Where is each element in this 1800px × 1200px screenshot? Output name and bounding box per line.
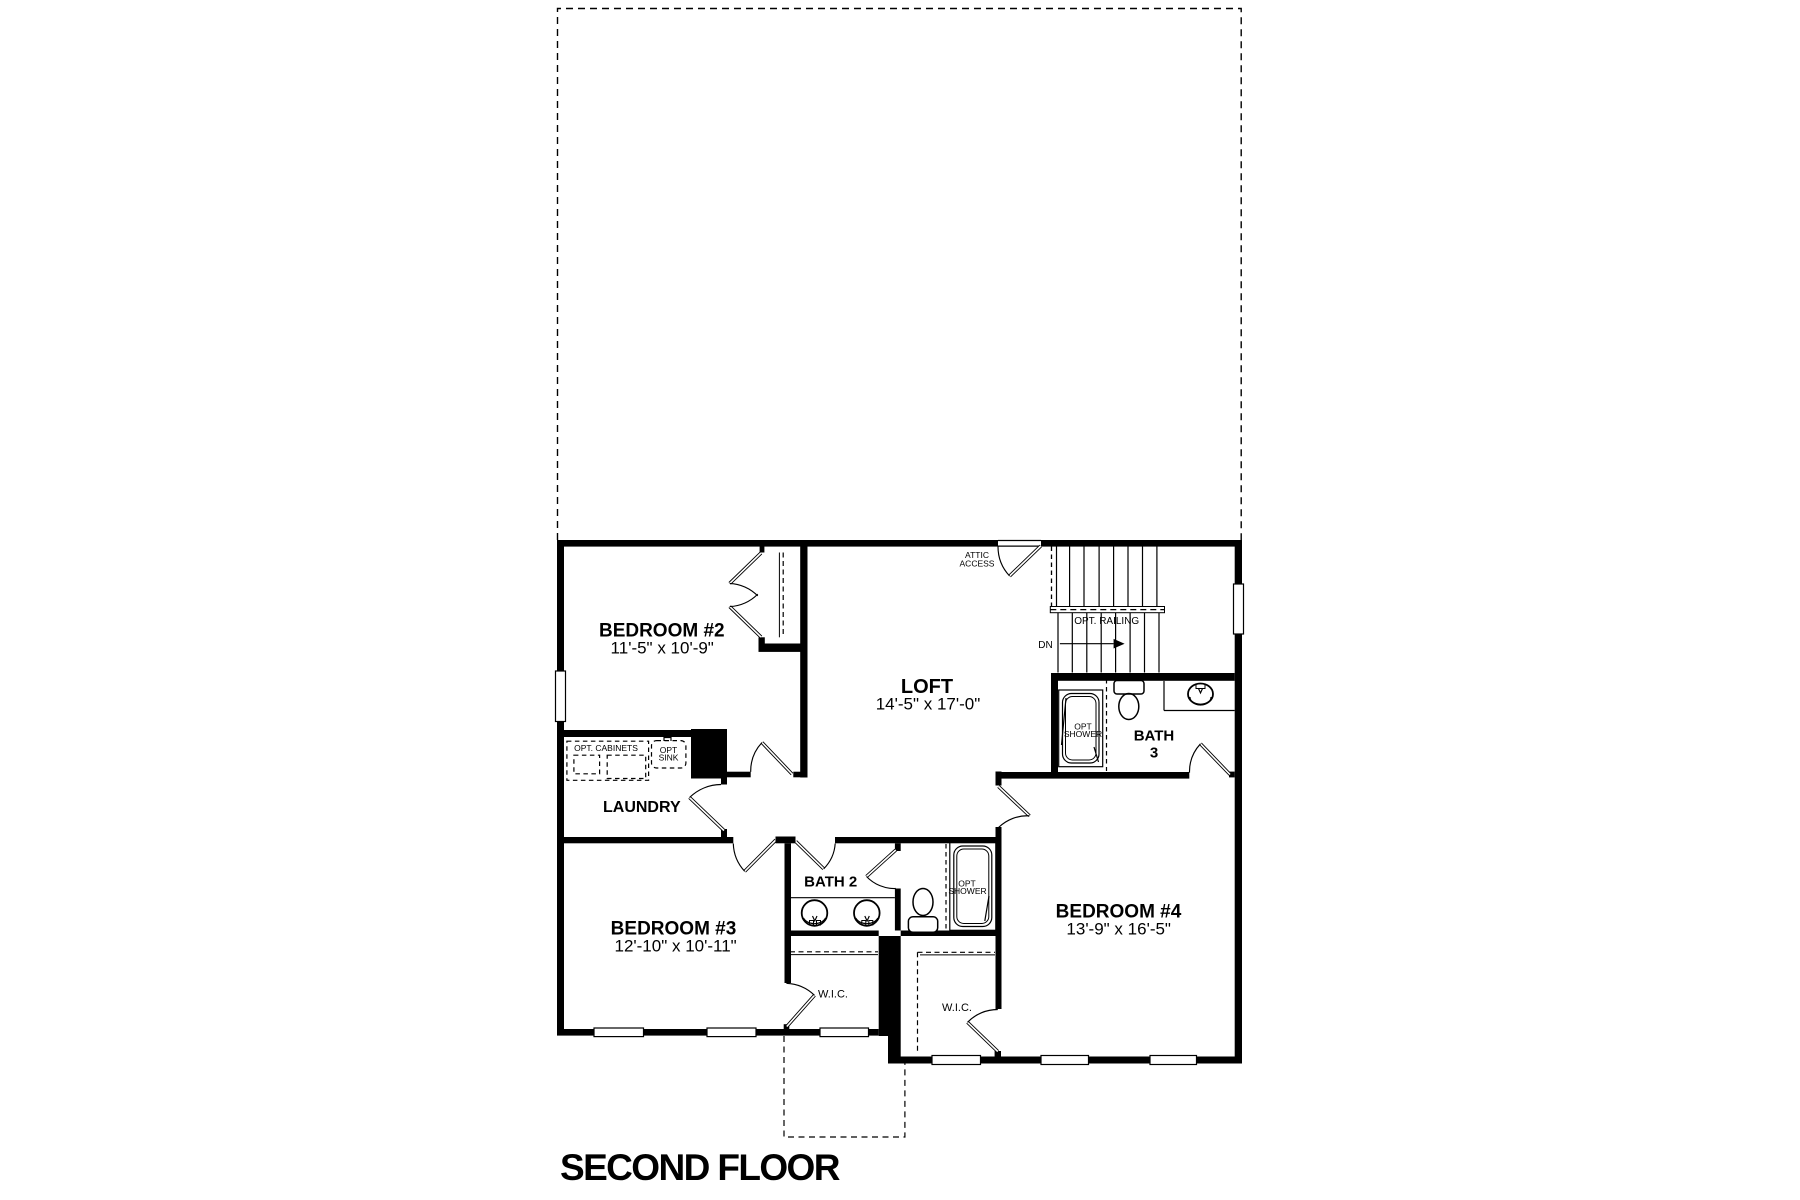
svg-text:SHOWER: SHOWER [1064,729,1102,739]
svg-text:14'-5" x 17'-0": 14'-5" x 17'-0" [876,694,981,713]
svg-text:BATH: BATH [1134,728,1175,745]
svg-text:ACCESS: ACCESS [960,558,995,568]
svg-text:13'-9" x 16'-5": 13'-9" x 16'-5" [1066,919,1171,938]
svg-text:SINK: SINK [659,753,679,763]
svg-text:OPT. RAILING: OPT. RAILING [1074,616,1139,627]
svg-text:BATH 2: BATH 2 [804,874,857,891]
svg-text:SHOWER: SHOWER [948,886,986,896]
svg-text:11'-5" x 10'-9": 11'-5" x 10'-9" [611,638,714,657]
svg-text:SECOND FLOOR: SECOND FLOOR [560,1147,840,1188]
svg-text:W.I.C.: W.I.C. [942,1002,972,1014]
svg-text:DN: DN [1038,640,1052,651]
svg-text:12'-10" x 10'-11": 12'-10" x 10'-11" [614,936,736,955]
svg-text:OPT. CABINETS: OPT. CABINETS [574,743,638,753]
svg-text:W.I.C.: W.I.C. [818,989,848,1001]
svg-text:3: 3 [1150,745,1158,762]
svg-text:LAUNDRY: LAUNDRY [603,799,681,816]
